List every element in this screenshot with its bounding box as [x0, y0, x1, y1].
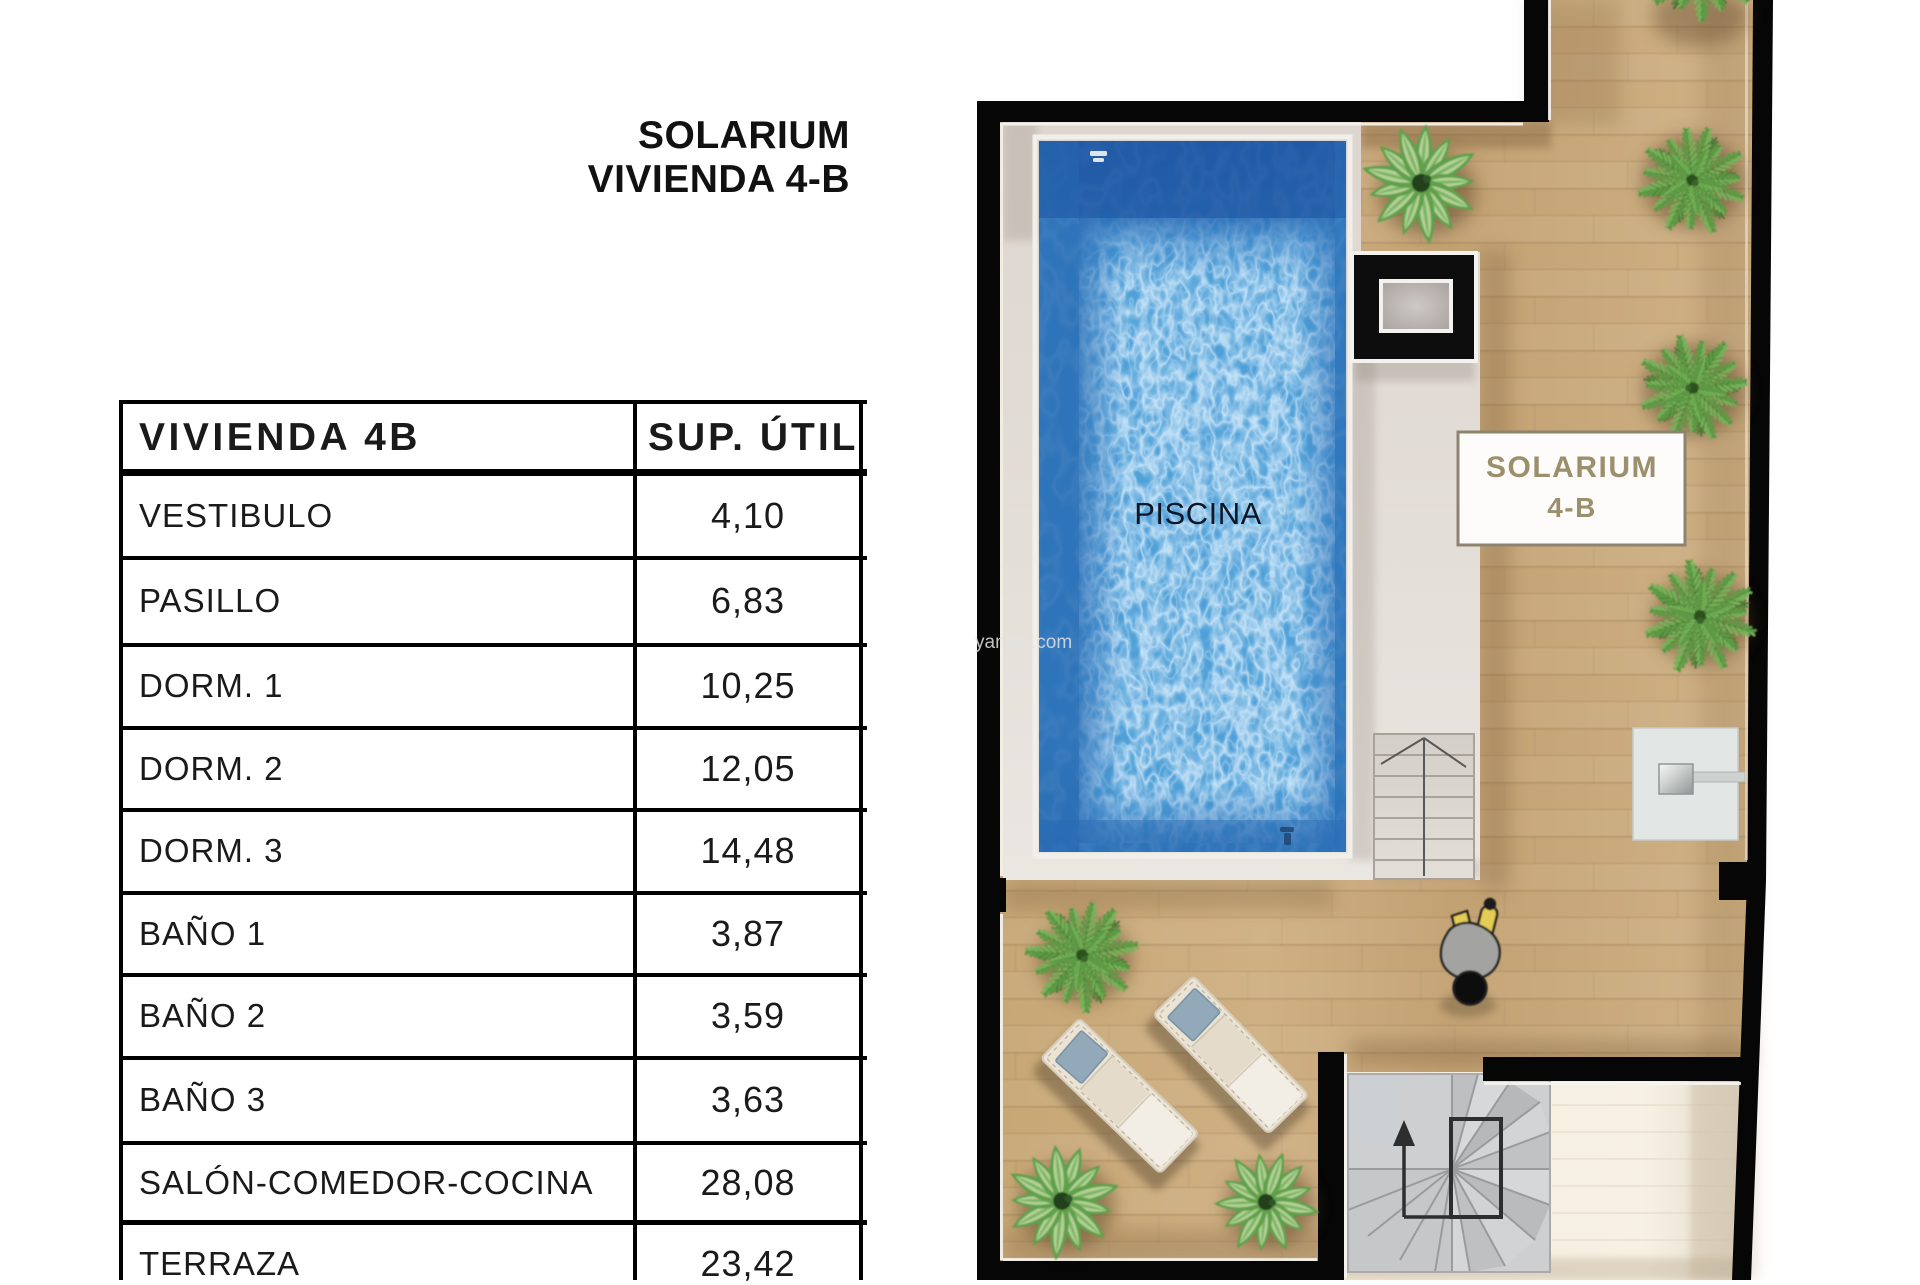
svg-text:SOLARIUM: SOLARIUM	[1486, 451, 1658, 484]
svg-text:4-B: 4-B	[1547, 492, 1597, 523]
svg-text:yanza .com: yanza .com	[975, 632, 1072, 653]
svg-text:PISCINA: PISCINA	[1134, 496, 1262, 531]
